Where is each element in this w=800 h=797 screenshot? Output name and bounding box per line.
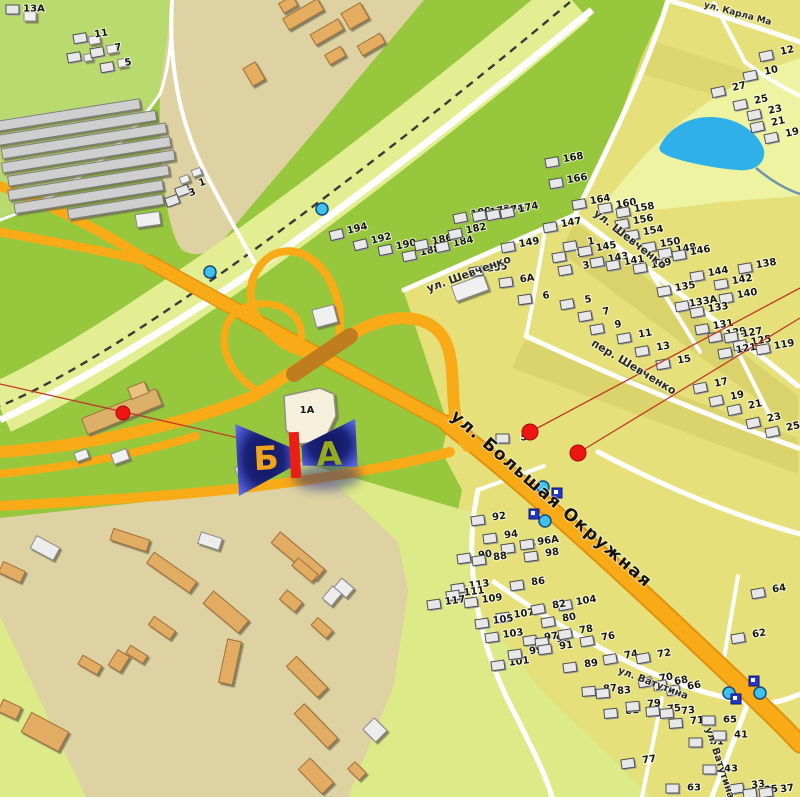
house-shape — [508, 649, 522, 660]
house-shape — [73, 33, 87, 44]
stop-sign-glyph — [531, 511, 535, 515]
house-shape — [520, 539, 534, 550]
house-shape — [675, 301, 689, 312]
house-shape — [604, 708, 618, 718]
house-shape — [501, 242, 515, 253]
house-number-label: 41 — [734, 730, 748, 741]
house-shape — [485, 632, 499, 643]
house-number-label: 63 — [687, 783, 701, 794]
house-shape — [578, 311, 592, 322]
house-shape — [464, 597, 478, 608]
house-number-label: 92 — [491, 511, 506, 524]
building — [135, 211, 161, 227]
house-shape — [6, 5, 19, 14]
house-shape — [636, 653, 650, 664]
house-shape — [572, 199, 586, 210]
house-shape — [510, 580, 524, 591]
house-shape — [558, 265, 572, 276]
house-shape — [563, 241, 577, 252]
house-shape — [751, 588, 765, 599]
house-number-label: 6А — [519, 272, 535, 285]
building-1a-label: 1А — [300, 405, 315, 416]
house-number-label: 65 — [723, 715, 737, 726]
house-shape — [524, 551, 538, 562]
house-shape — [563, 662, 577, 673]
house-shape — [518, 294, 532, 305]
house-shape — [491, 660, 505, 671]
house-shape — [90, 47, 104, 58]
house-shape — [545, 157, 559, 168]
house-shape — [759, 787, 773, 797]
stop-sign-glyph — [733, 696, 737, 700]
house-shape — [499, 277, 513, 288]
house-shape — [626, 701, 640, 711]
house-shape — [672, 250, 686, 261]
house-shape — [560, 299, 574, 310]
house-shape — [590, 257, 604, 268]
house-shape — [483, 533, 497, 544]
house-with-number: 13А — [6, 4, 45, 16]
house-number-label: 83 — [617, 685, 632, 697]
house-shape — [669, 718, 683, 728]
house-shape — [703, 765, 716, 774]
house-shape — [580, 636, 594, 647]
house-shape — [543, 222, 557, 233]
house-number-label: 86 — [530, 576, 545, 589]
stop-sign-icon[interactable] — [529, 509, 539, 519]
house-shape — [616, 207, 630, 218]
house-shape — [603, 654, 617, 665]
house-shape — [660, 708, 674, 718]
marker-side-a-label: А — [315, 434, 343, 474]
stop-sign-glyph — [751, 678, 755, 682]
house-shape — [646, 706, 660, 716]
transit-point-icon[interactable] — [539, 515, 551, 527]
house-shape — [558, 629, 572, 640]
stop-sign-icon[interactable] — [749, 676, 759, 686]
house-number-label: 77 — [641, 754, 656, 767]
poi-red-dot[interactable] — [116, 406, 130, 420]
house-shape — [582, 686, 596, 696]
house-shape — [743, 788, 757, 797]
house-shape — [718, 348, 732, 359]
house-shape — [689, 738, 702, 747]
transit-point-icon[interactable] — [204, 266, 216, 278]
stop-sign-icon[interactable] — [731, 694, 741, 704]
house-shape — [552, 252, 566, 263]
house-shape — [67, 52, 81, 63]
house-shape — [590, 324, 604, 335]
house-shape — [471, 515, 485, 526]
house-shape — [538, 644, 552, 655]
house-number-label: 88 — [492, 551, 507, 564]
house-shape — [702, 716, 715, 725]
house-shape — [427, 599, 441, 610]
house-shape — [541, 617, 555, 628]
house-number-label: 89 — [583, 658, 598, 671]
poi-red-dot[interactable] — [522, 424, 538, 440]
house-shape — [635, 346, 649, 357]
house-shape — [714, 279, 728, 290]
house-shape — [695, 324, 709, 335]
house-number-label: 91 — [558, 640, 573, 653]
house-number-label: 98 — [544, 547, 559, 560]
house-shape — [475, 618, 489, 629]
transit-point-icon[interactable] — [316, 203, 328, 215]
house-shape — [666, 784, 679, 793]
house-shape — [617, 333, 631, 344]
house-shape — [657, 286, 671, 297]
house-shape — [633, 263, 647, 274]
house-shape — [100, 62, 114, 73]
house-shape — [549, 178, 563, 189]
house-number-label: 13А — [23, 4, 45, 15]
house-shape — [756, 344, 770, 355]
house-shape — [621, 758, 635, 769]
house-shape — [738, 263, 752, 274]
house-shape — [690, 307, 704, 318]
house-shape — [531, 604, 545, 615]
house-shape — [457, 553, 471, 564]
transit-point-icon[interactable] — [754, 687, 766, 699]
house-shape — [606, 260, 620, 271]
house-shape — [472, 555, 486, 566]
house-shape — [731, 633, 745, 644]
poi-red-dot[interactable] — [570, 445, 586, 461]
city-map-canvas[interactable]: 1А 13А1197513194192190188186184182180178… — [0, 0, 800, 797]
house-shape — [596, 688, 610, 698]
house-shape — [578, 246, 592, 257]
house-number-label: 37 — [779, 783, 794, 796]
marker-side-b-label: Б — [252, 438, 279, 478]
house-number-label: 94 — [503, 529, 518, 542]
